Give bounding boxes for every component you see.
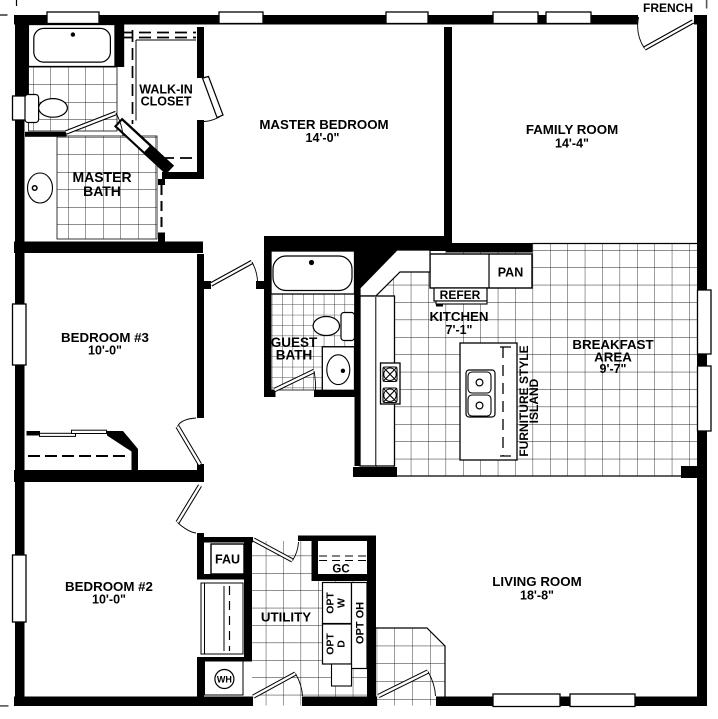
svg-text:ISLAND: ISLAND bbox=[527, 378, 541, 423]
svg-text:LIVING ROOM: LIVING ROOM bbox=[492, 574, 581, 589]
svg-text:10'-0": 10'-0" bbox=[92, 593, 126, 607]
svg-text:WH: WH bbox=[217, 675, 232, 685]
svg-text:FAMILY ROOM: FAMILY ROOM bbox=[526, 122, 618, 137]
svg-text:MASTER BEDROOM: MASTER BEDROOM bbox=[259, 117, 388, 132]
svg-text:14'-0": 14'-0" bbox=[306, 131, 340, 145]
svg-text:UTILITY: UTILITY bbox=[261, 610, 311, 625]
svg-text:FAU: FAU bbox=[215, 553, 240, 567]
svg-text:PAN: PAN bbox=[498, 266, 523, 280]
svg-text:FRENCH: FRENCH bbox=[643, 1, 693, 15]
svg-text:10'-0": 10'-0" bbox=[88, 344, 122, 358]
svg-text:KITCHEN: KITCHEN bbox=[429, 309, 488, 324]
svg-text:D: D bbox=[336, 640, 348, 648]
svg-text:9'-7": 9'-7" bbox=[600, 362, 627, 376]
svg-text:18'-8": 18'-8" bbox=[520, 589, 554, 603]
svg-text:W: W bbox=[336, 598, 348, 608]
svg-text:GC: GC bbox=[332, 564, 349, 576]
svg-text:REFER: REFER bbox=[440, 288, 481, 302]
svg-text:OPT OH: OPT OH bbox=[355, 602, 367, 644]
svg-text:7'-1": 7'-1" bbox=[446, 323, 473, 337]
svg-text:BATH: BATH bbox=[276, 348, 313, 363]
svg-text:14'-4": 14'-4" bbox=[555, 137, 589, 151]
svg-text:BATH: BATH bbox=[83, 183, 121, 199]
svg-text:CLOSET: CLOSET bbox=[141, 95, 192, 109]
